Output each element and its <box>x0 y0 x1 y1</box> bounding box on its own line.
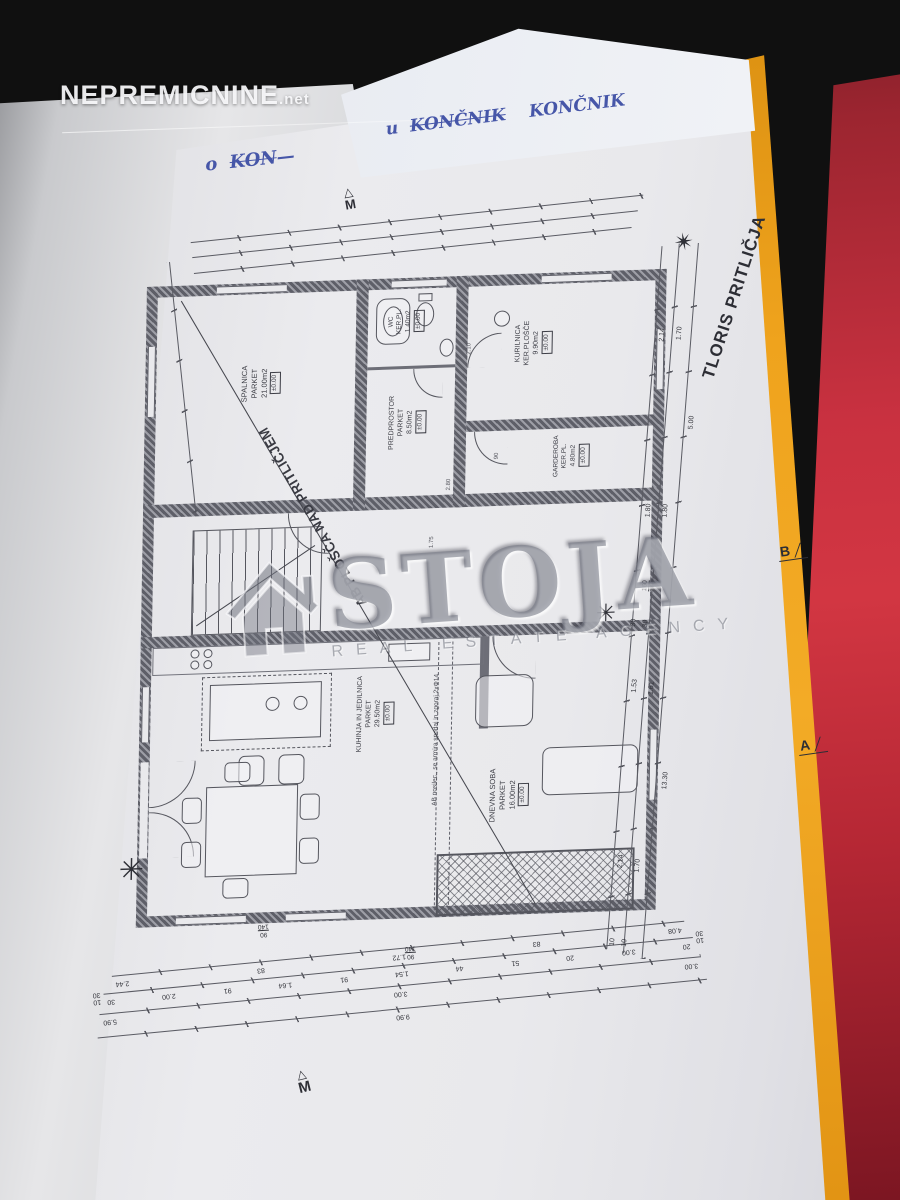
room-area: 16.00m2 <box>507 780 517 810</box>
room-finish: PARKET <box>249 369 259 399</box>
terrace-glazing <box>436 847 635 916</box>
room-label-garderoba: GARDEROBA KER.PL. 4.80m2 ±0.00 <box>552 412 590 498</box>
dim-value: 2.14 <box>658 328 666 342</box>
wall <box>453 276 469 508</box>
room-level: ±0.00 <box>579 444 590 467</box>
beam-note: AB nosilec., se armira spodaj in zgoraj … <box>431 655 441 805</box>
room-level: ±0.00 <box>542 331 553 354</box>
dim-value: 2.14 <box>617 855 625 869</box>
window-size-marker: 90 140 <box>405 944 417 960</box>
chair <box>299 837 319 864</box>
room-label-kuhinja: KUHINJA IN JEDILNICA PARKET 29.50m2 ±0.0… <box>354 655 395 771</box>
section-marker-b: B <box>777 540 809 562</box>
dim-value: 30 <box>104 993 119 1005</box>
dim-value: 91 <box>220 982 235 994</box>
handwriting-dash: — <box>276 145 296 168</box>
scale-letter: M <box>344 197 357 212</box>
window-height: 140 <box>405 944 416 953</box>
handwriting-mark: u <box>385 118 400 139</box>
room-finish: KER.PLOŠČE <box>522 321 532 366</box>
dim-value: 91 <box>336 971 351 983</box>
dim-value: 1.61 <box>648 681 656 695</box>
dim-value: 90 <box>494 452 500 459</box>
window <box>141 687 150 742</box>
dim-value: 2.44 <box>112 975 133 988</box>
room-area: 29.50m2 <box>373 700 383 728</box>
room-area: 8.50m2 <box>405 410 414 434</box>
door-arc <box>473 430 508 465</box>
room-level: ±0.00 <box>414 310 425 333</box>
armchair <box>475 674 534 728</box>
room-label-wc: WC KER.PL. 1.40m2 ±0.00 <box>387 286 425 357</box>
stool <box>278 754 305 785</box>
dim-value: 2.80 <box>446 479 452 491</box>
dim-value: 10 <box>609 938 617 946</box>
window-width: 90 <box>407 953 415 960</box>
room-name: PREDPROSTOR <box>387 396 397 450</box>
washbasin <box>439 338 453 357</box>
dim-value: 83 <box>529 935 544 947</box>
room-name: WC <box>388 316 397 327</box>
dim-value: 3.00 <box>390 985 411 998</box>
room-level: ±0.00 <box>518 783 529 806</box>
chair <box>182 797 202 824</box>
dim-value: 10 <box>90 998 104 1006</box>
window-width: 90 <box>260 931 268 938</box>
dimension-end-caps: 3010 <box>89 991 104 1006</box>
wall <box>353 279 369 511</box>
room-level: ±0.00 <box>416 411 427 434</box>
dim-value: 1.70 <box>634 858 642 872</box>
shrub-icon: ✳ <box>119 852 145 888</box>
stoja-house-icon <box>219 551 322 661</box>
window <box>147 347 156 417</box>
dimension-end-caps: 1010 <box>609 938 629 947</box>
room-label-kurilnica: KURILNICA KER.PLOŠČE 9.90m2 ±0.00 <box>513 295 553 391</box>
nepremicnine-watermark: NEPREMICNINE.net <box>60 80 310 111</box>
dim-value: 9.90 <box>393 1008 414 1021</box>
room-finish: PARKET <box>396 409 406 437</box>
handwriting-mark: o <box>204 153 218 175</box>
chair <box>299 793 319 820</box>
door-arc <box>467 333 502 368</box>
dim-value: 13.30 <box>661 772 669 790</box>
room-area: 21.00m2 <box>259 369 269 399</box>
window-height: 140 <box>258 922 269 931</box>
dim-value: 2.10 <box>466 343 472 355</box>
dim-value: 51 <box>508 954 523 966</box>
chair <box>222 878 248 899</box>
dim-value: 5.90 <box>100 1013 121 1026</box>
room-label-dnevna-soba: DNEVNA SOBA PARKET 16.00m2 ±0.00 <box>487 742 529 849</box>
dim-value: 10 <box>621 939 629 947</box>
dim-value: 1.53 <box>631 679 639 693</box>
photo-of-floor-plan: NEPREMICNINE.net u KONČNIK KONČNIK o KON… <box>0 0 900 1200</box>
dim-value: 1.64 <box>275 976 296 989</box>
room-name: DNEVNA SOBA <box>487 768 498 822</box>
room-area: 1.40m2 <box>404 310 413 332</box>
dim-value: 44 <box>452 960 467 972</box>
dim-value: 2.00 <box>159 987 180 1000</box>
nepremicnine-suffix: .net <box>279 91 310 108</box>
room-label-predprostor: PREDPROSTOR PARKET 8.50m2 ±0.00 <box>387 374 427 470</box>
dim-value: 1.70 <box>676 326 684 340</box>
dim-value: 3.00 <box>681 957 702 970</box>
room-level: ±0.00 <box>383 702 394 725</box>
entrance-opening <box>139 762 149 858</box>
kitchen-island <box>209 681 322 741</box>
window-size-marker: 90 140 <box>258 922 270 938</box>
dimension-end-caps: 3010 <box>692 929 707 944</box>
boiler <box>494 310 510 327</box>
dim-value: 83 <box>253 962 268 974</box>
chair <box>224 762 250 783</box>
dim-value: 10 <box>693 936 707 944</box>
dim-value: 5.00 <box>688 415 696 429</box>
dining-table <box>205 784 299 877</box>
room-area: 9.90m2 <box>532 331 541 355</box>
room-finish: PARKET <box>497 780 507 810</box>
room-area: 4.80m2 <box>569 445 578 467</box>
dim-value: 1.80 <box>645 503 653 517</box>
dim-value: 1.54 <box>391 965 412 978</box>
room-name: GARDEROBA <box>552 435 561 477</box>
dim-value: 20 <box>563 949 578 961</box>
chair <box>181 841 201 868</box>
nepremicnine-brand: NEPREMICNINE <box>60 80 279 110</box>
room-finish: PARKET <box>364 700 374 728</box>
room-level: ±0.00 <box>270 372 281 395</box>
